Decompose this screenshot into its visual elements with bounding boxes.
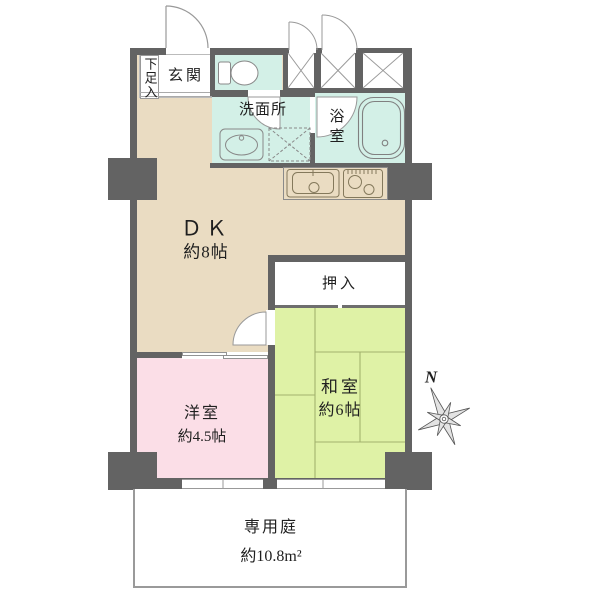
shoe-box-label: 下足入: [141, 57, 160, 99]
western-room-size-label: 約4.5帖: [178, 429, 227, 446]
wall-western-top: [137, 352, 182, 358]
toilet-door-gap: [248, 90, 280, 97]
bath-door-gap: [310, 97, 315, 133]
wall-closet-top: [268, 255, 412, 262]
utility-door-icons: [289, 15, 357, 50]
window-western: [182, 479, 263, 489]
japanese-room-label: 和室: [321, 379, 361, 398]
utility-box-door-gap-2: [322, 48, 356, 53]
utility-box-2: [321, 53, 355, 88]
floor-plan: 下足入 玄関 洗面所 浴室 ＤＫ 約8帖 押入 和室 約6帖 洋室 約4.5帖 …: [0, 0, 600, 600]
bathroom-label: 浴室: [326, 108, 347, 148]
wall-right: [405, 48, 412, 490]
pillar-right-lower: [385, 452, 432, 490]
dk-size-label: 約8帖: [183, 244, 229, 263]
room-toilet: [215, 55, 282, 93]
wall-toilet-bottom-a: [210, 90, 248, 97]
garden-label: 専用庭: [244, 519, 298, 537]
wall-dk-japanese-b: [268, 345, 275, 478]
window-japanese: [277, 479, 385, 489]
western-room-label: 洋室: [184, 405, 220, 423]
pillar-left-lower: [108, 452, 157, 490]
wall-left: [130, 48, 137, 490]
washroom-label: 洗面所: [239, 102, 287, 119]
utility-box-door-gap-1: [289, 48, 316, 53]
entrance-label: 玄関: [168, 68, 204, 85]
fusuma-gap: [338, 305, 342, 308]
compass-north-label: N: [425, 369, 437, 388]
utility-box-3: [363, 53, 403, 88]
utility-box-1: [288, 53, 314, 88]
japanese-door-gap: [266, 310, 275, 345]
closet-label: 押入: [322, 276, 358, 293]
wall-top-b: [210, 48, 288, 55]
pillar-right-upper: [387, 163, 432, 200]
entrance-door-icon: [166, 6, 208, 48]
compass-rose-icon: [405, 377, 481, 456]
japanese-room-size-label: 約6帖: [318, 402, 361, 420]
wall-dk-japanese-a: [268, 262, 275, 310]
dk-label: ＤＫ: [181, 217, 231, 240]
garden-size-label: 約10.8m²: [240, 548, 301, 566]
sliding-door: [182, 352, 268, 359]
pillar-left-upper: [108, 158, 157, 200]
private-garden: [133, 489, 407, 588]
kitchen-counter: [283, 167, 388, 200]
